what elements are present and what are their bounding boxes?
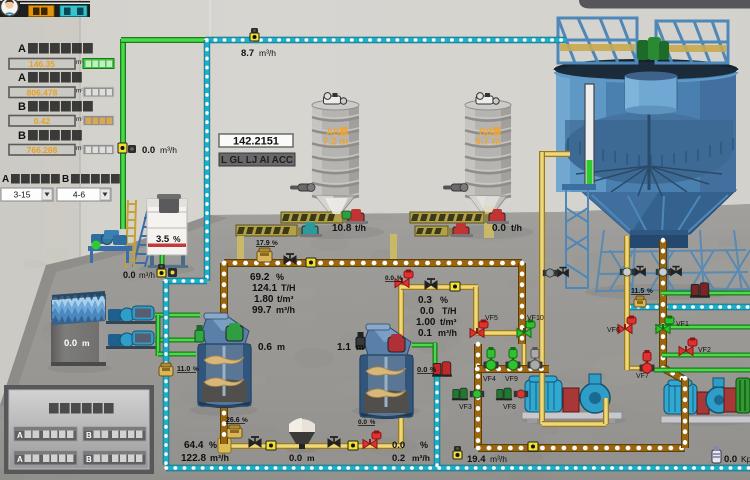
svg-text:0.2: 0.2: [392, 453, 405, 464]
svg-text:64.4: 64.4: [184, 440, 204, 451]
svg-text:m³/h: m³/h: [438, 328, 457, 338]
svg-text:m³/h: m³/h: [210, 453, 229, 463]
svg-text:VF10: VF10: [527, 315, 544, 322]
svg-text:A: A: [18, 43, 26, 55]
svg-text:%: %: [440, 295, 448, 305]
svg-text:0.0: 0.0: [64, 338, 77, 349]
svg-text:VF1: VF1: [676, 321, 689, 328]
svg-text:VF2: VF2: [698, 347, 711, 354]
svg-text:t/h: t/h: [355, 223, 366, 233]
svg-text:%: %: [173, 234, 181, 244]
svg-text:0.42: 0.42: [34, 116, 51, 126]
svg-text:AB: AB: [326, 127, 340, 138]
svg-text:B: B: [86, 431, 92, 440]
svg-text:0.0: 0.0: [142, 145, 155, 156]
svg-text:VF7: VF7: [636, 373, 649, 380]
svg-text:0.0: 0.0: [724, 454, 737, 465]
svg-text:t/m³: t/m³: [277, 294, 294, 304]
svg-text:A: A: [17, 455, 23, 464]
svg-text:1.00: 1.00: [416, 317, 436, 328]
svg-text:0.0: 0.0: [358, 419, 367, 426]
svg-text:A: A: [17, 431, 23, 440]
svg-text:1.1: 1.1: [337, 342, 351, 353]
svg-text:1.80: 1.80: [254, 294, 274, 305]
svg-text:17.9: 17.9: [256, 240, 270, 247]
svg-text:124.1: 124.1: [252, 283, 277, 294]
svg-text:0.0: 0.0: [385, 275, 394, 282]
svg-text:t/m³: t/m³: [440, 317, 457, 327]
svg-text:VF6: VF6: [607, 327, 620, 334]
svg-text:766.288: 766.288: [27, 145, 58, 155]
svg-text:m³/h: m³/h: [160, 145, 177, 155]
svg-text:m³/h: m³/h: [259, 48, 276, 58]
svg-text:146.35: 146.35: [29, 59, 55, 69]
svg-text:0.0: 0.0: [417, 365, 427, 374]
svg-text:VF8: VF8: [503, 404, 516, 411]
svg-text:m: m: [307, 453, 315, 463]
svg-text:A: A: [2, 174, 9, 185]
svg-text:Kp: Kp: [741, 454, 750, 464]
svg-text:m³/h: m³/h: [139, 271, 155, 280]
svg-text:9.7 m: 9.7 m: [475, 136, 501, 147]
svg-text:0.3: 0.3: [418, 295, 432, 306]
svg-text:m³/h: m³/h: [276, 305, 295, 315]
svg-text:T/H: T/H: [281, 283, 296, 293]
svg-text:0.0: 0.0: [123, 270, 136, 280]
svg-text:%: %: [242, 417, 248, 424]
svg-text:0.0: 0.0: [420, 306, 434, 317]
svg-text:99.7: 99.7: [252, 305, 272, 316]
svg-text:T/H: T/H: [442, 306, 457, 316]
svg-text:m³/h: m³/h: [490, 454, 507, 464]
svg-text:69.2: 69.2: [250, 272, 270, 283]
svg-text:0.0: 0.0: [289, 453, 302, 464]
svg-text:7.2 m: 7.2 m: [323, 136, 349, 147]
svg-text:BB: BB: [479, 127, 493, 138]
svg-text:B: B: [18, 130, 26, 142]
svg-text:B: B: [62, 174, 69, 185]
svg-text:11.5: 11.5: [631, 288, 644, 295]
svg-text:26.6: 26.6: [226, 417, 240, 424]
svg-text:10.8: 10.8: [332, 223, 352, 234]
svg-text:%: %: [276, 272, 284, 282]
svg-text:%: %: [430, 367, 437, 374]
svg-text:%: %: [420, 440, 428, 450]
svg-text:B: B: [86, 455, 92, 464]
svg-text:142.2151: 142.2151: [233, 136, 279, 148]
svg-text:m: m: [356, 342, 364, 352]
svg-text:0.0: 0.0: [492, 223, 506, 234]
svg-text:11.0: 11.0: [177, 366, 190, 373]
svg-text:VF4: VF4: [483, 376, 496, 383]
svg-text:3.5: 3.5: [156, 234, 170, 245]
svg-text:806.478: 806.478: [27, 88, 58, 98]
svg-text:B: B: [18, 101, 26, 113]
svg-text:4-6: 4-6: [73, 190, 86, 200]
svg-text:%: %: [193, 366, 199, 373]
svg-text:0.1: 0.1: [418, 328, 432, 339]
svg-text:19.4: 19.4: [467, 454, 486, 465]
svg-text:m: m: [82, 338, 90, 348]
svg-text:A: A: [18, 72, 26, 84]
svg-text:VF5: VF5: [485, 315, 498, 322]
svg-text:VF3: VF3: [459, 404, 472, 411]
svg-text:8.7: 8.7: [241, 48, 254, 59]
svg-text:0.6: 0.6: [258, 342, 272, 353]
svg-text:0.0: 0.0: [392, 440, 405, 451]
svg-text:3-15: 3-15: [13, 190, 30, 200]
svg-text:122.8: 122.8: [181, 453, 206, 464]
svg-text:L GL LJ AI ACC: L GL LJ AI ACC: [221, 155, 293, 166]
svg-text:%: %: [272, 240, 278, 247]
svg-text:m: m: [277, 342, 285, 352]
svg-text:%: %: [647, 288, 653, 295]
svg-text:t/h: t/h: [511, 223, 522, 233]
svg-text:%: %: [209, 440, 217, 450]
svg-text:VF9: VF9: [505, 376, 518, 383]
svg-text:m³/h: m³/h: [412, 453, 430, 463]
